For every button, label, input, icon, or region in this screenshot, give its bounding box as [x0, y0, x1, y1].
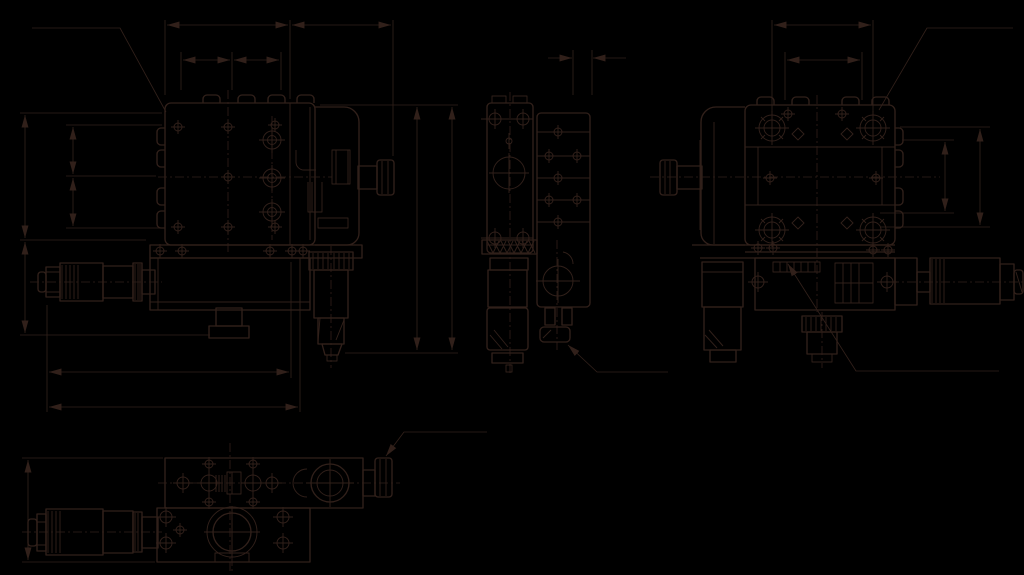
hole-crosshair — [763, 171, 777, 185]
hole-crosshair — [268, 118, 282, 132]
hole-crosshair — [173, 523, 187, 537]
hole-crosshair — [171, 120, 185, 134]
locking-foot — [216, 308, 242, 326]
hole-crosshair — [781, 107, 795, 121]
gib-block — [773, 262, 873, 303]
hole-crosshair — [246, 457, 260, 471]
rear-view-micrometer-left — [702, 262, 743, 362]
bolt-hole — [751, 241, 765, 255]
hole-crosshair — [268, 220, 282, 234]
hole-crosshair — [748, 272, 768, 292]
bolt-hole — [175, 244, 189, 258]
left-bosses — [157, 128, 165, 228]
side-view-dimensions — [548, 50, 626, 95]
knurl-hatch — [806, 317, 836, 331]
rear-view-leader-line-top — [879, 28, 1013, 110]
rear-view-centerlines — [650, 95, 1023, 368]
rear-view-dimensions — [772, 20, 990, 227]
side-view-micrometer-bottom — [482, 240, 537, 372]
bottom-view-body — [156, 457, 392, 562]
bolt-hole — [766, 241, 780, 255]
knob-shaft — [358, 166, 377, 189]
front-view — [20, 20, 458, 412]
side-flange — [315, 107, 359, 245]
top-bosses — [757, 97, 889, 105]
left-knob — [660, 160, 677, 195]
nut-diamond — [841, 217, 853, 229]
extension-lines — [20, 20, 458, 412]
drive-knob — [377, 160, 394, 195]
bottom-view — [22, 432, 487, 574]
hole-crosshair — [273, 507, 293, 527]
hole-crosshair — [202, 457, 216, 471]
side-view-lock-knob — [540, 308, 572, 342]
rear-view — [650, 20, 1023, 371]
flange-clamp-details — [296, 150, 350, 228]
drive-knob — [375, 458, 392, 497]
right-slab — [537, 113, 590, 307]
bottom-view-leader-line — [386, 432, 487, 456]
side-view — [481, 50, 668, 375]
front-view-dimensions — [20, 20, 458, 412]
hole-crosshair — [246, 495, 260, 509]
corner-rosette — [755, 213, 789, 247]
bolt-hole — [153, 244, 167, 258]
main-plate — [165, 103, 315, 245]
drawing-canvas — [0, 0, 1024, 575]
nut-diamond — [841, 128, 853, 140]
extension-lines — [772, 20, 990, 227]
rear-view-body — [660, 97, 903, 310]
bolt-hole — [263, 244, 277, 258]
knurl-hatch — [932, 259, 1022, 303]
micrometer-right — [895, 258, 1023, 305]
extension-lines — [573, 50, 626, 95]
nut-diamond — [792, 217, 804, 229]
side-view-leader-line — [568, 345, 668, 372]
front-view-leader-line — [32, 28, 166, 112]
technical-drawing — [0, 0, 1024, 575]
rear-view-leader-line-bottom — [788, 264, 999, 371]
lower-block — [755, 258, 895, 310]
hole-crosshair — [513, 109, 533, 129]
hole-crosshair — [202, 495, 216, 509]
bolt-hole — [296, 244, 310, 258]
corner-rosette — [856, 213, 890, 247]
top-bosses — [203, 95, 314, 103]
left-flange — [701, 107, 745, 245]
corner-rosette — [856, 111, 890, 145]
front-view-holes — [153, 118, 310, 258]
hole-crosshair — [156, 533, 176, 553]
hole-crosshair — [171, 220, 185, 234]
nut-diamond — [792, 128, 804, 140]
corner-rosette — [755, 111, 789, 145]
side-view-body — [481, 96, 590, 307]
rear-view-holes — [748, 107, 897, 292]
hole-crosshair — [485, 109, 505, 129]
knob-shaft — [677, 166, 702, 189]
hole-crosshair — [835, 107, 849, 121]
hole-crosshair — [273, 533, 293, 553]
hole-crosshair — [156, 507, 176, 527]
hole-crosshair — [869, 171, 883, 185]
